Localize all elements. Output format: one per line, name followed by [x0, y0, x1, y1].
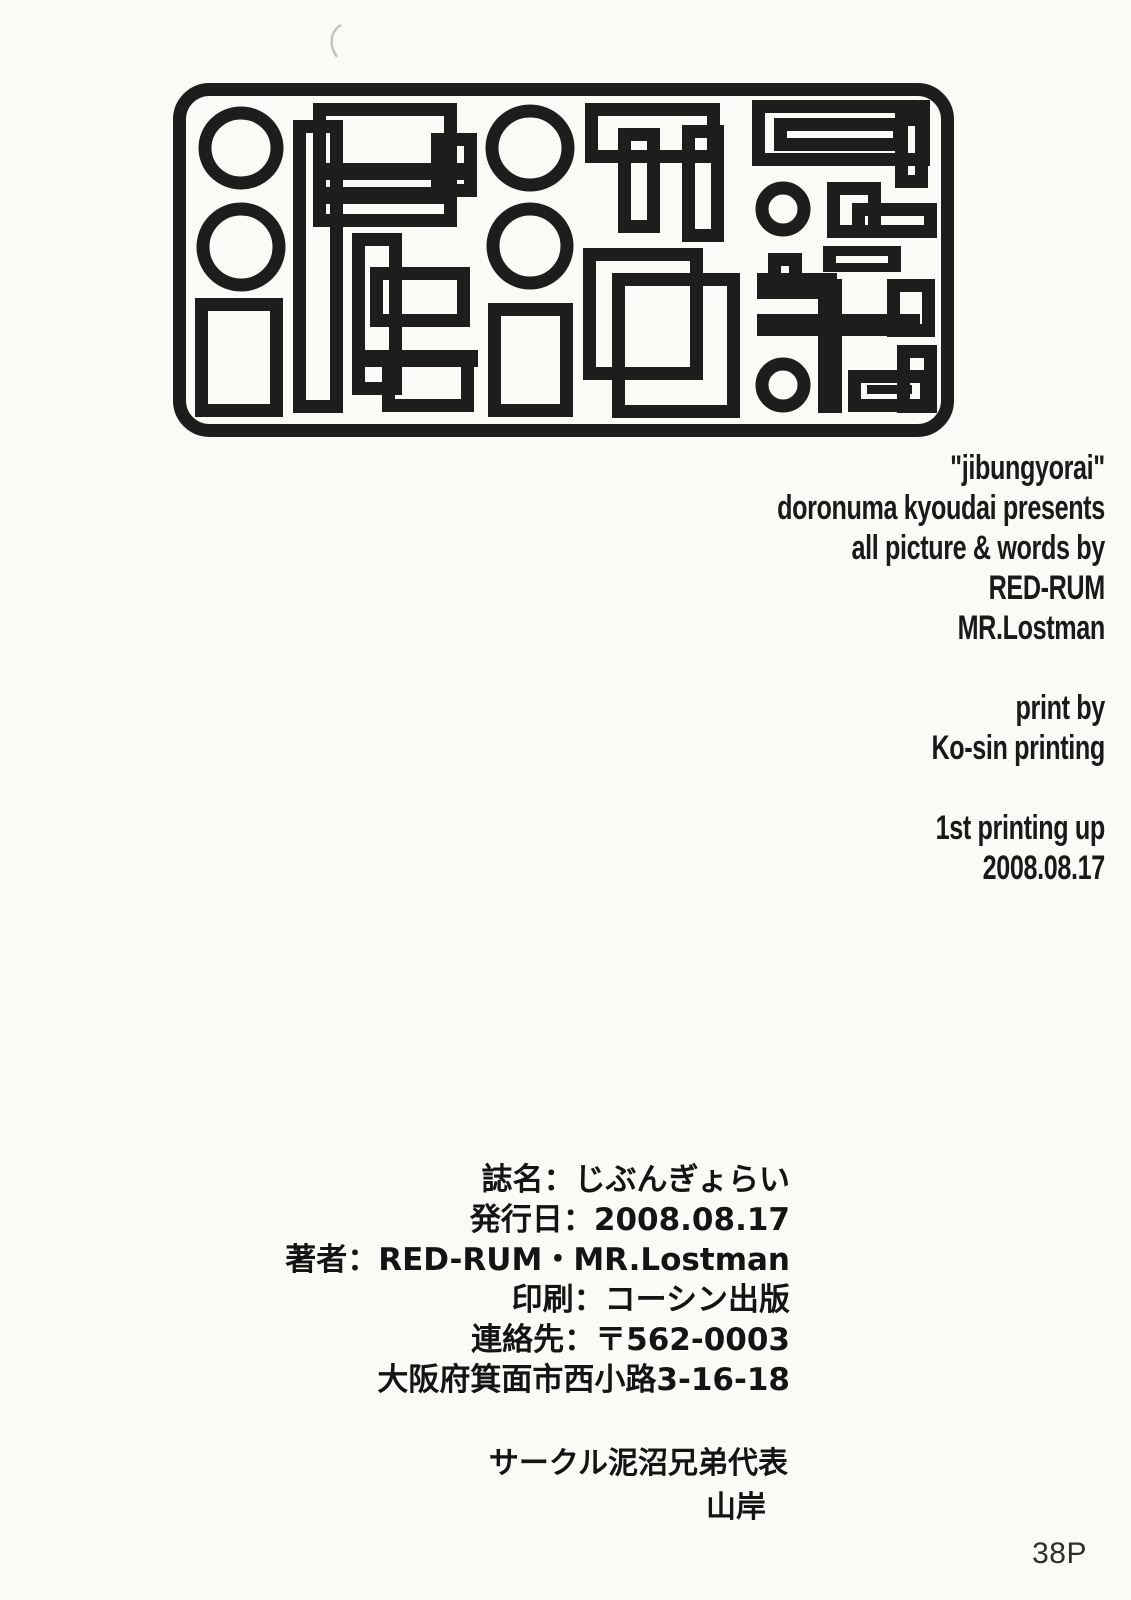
title-romaji: "jibungyorai"	[777, 448, 1105, 488]
colophon-japanese: 誌名：じぶんぎょらい 発行日：2008.08.17 著者：RED-RUM・MR.…	[285, 1160, 790, 1400]
jp-address-line: 大阪府箕面市西小路3-16-18	[285, 1360, 790, 1400]
page-number: 38P	[1032, 1537, 1087, 1571]
colophon-page: "jibungyorai" doronuma kyoudai presents …	[0, 0, 1131, 1600]
colophon-english: "jibungyorai" doronuma kyoudai presents …	[777, 448, 1105, 888]
author-mr-lostman: MR.Lostman	[777, 608, 1105, 648]
author-red-rum: RED-RUM	[777, 568, 1105, 608]
credit-group-title: "jibungyorai" doronuma kyoudai presents …	[777, 448, 1105, 648]
jp-printer-line: 印刷：コーシン出版	[285, 1280, 790, 1320]
byline: all picture & words by	[777, 528, 1105, 568]
stray-pen-mark-icon	[324, 22, 348, 60]
credit-group-printer: print by Ko-sin printing	[777, 688, 1105, 768]
jp-date-line: 発行日：2008.08.17	[285, 1200, 790, 1240]
doronuma-kyoudai-logo-icon	[173, 83, 954, 437]
printer-name: Ko-sin printing	[777, 728, 1105, 768]
credit-group-printing-date: 1st printing up 2008.08.17	[777, 808, 1105, 888]
jp-contact-line: 連絡先：〒562-0003	[285, 1320, 790, 1360]
jp-authors-line: 著者：RED-RUM・MR.Lostman	[285, 1240, 790, 1280]
representative-name: 山岸	[489, 1486, 766, 1530]
printing-date: 2008.08.17	[777, 848, 1105, 888]
circle-credit: サークル泥沼兄弟代表 山岸	[489, 1442, 788, 1530]
print-by-label: print by	[777, 688, 1105, 728]
printing-label: 1st printing up	[777, 808, 1105, 848]
presents-line: doronuma kyoudai presents	[777, 488, 1105, 528]
circle-name-line: サークル泥沼兄弟代表	[489, 1442, 788, 1486]
jp-title-line: 誌名：じぶんぎょらい	[285, 1160, 790, 1200]
